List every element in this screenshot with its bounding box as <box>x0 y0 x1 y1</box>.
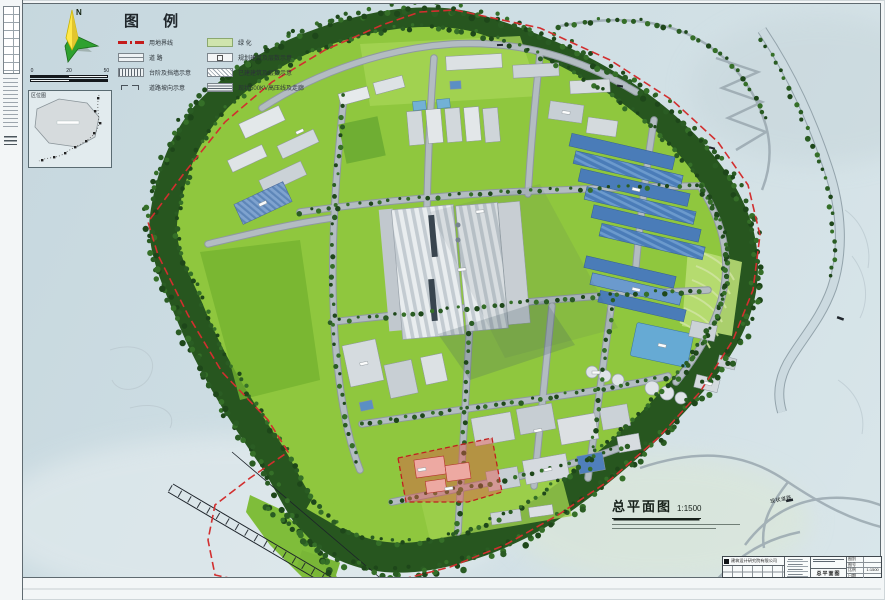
legend-item-built: 已建建筑及层数示意 <box>207 67 304 77</box>
scale-tick: 50 <box>104 68 110 74</box>
titleblock-fields: 图别 图号 比例1:1500 日期 <box>847 557 881 577</box>
legend-item-green: 绿 化 <box>207 37 304 47</box>
inset-site-label-chip <box>57 121 79 124</box>
plan-scale-text: 1:1500 <box>677 504 701 513</box>
powerline-swatch <box>207 83 233 92</box>
signature-grid <box>723 566 784 577</box>
scale-tick: 20 <box>66 68 72 74</box>
built-building-swatch <box>207 68 233 77</box>
legend-item-boundary: 用地界线 <box>118 37 191 47</box>
revision-table <box>3 6 20 74</box>
boundary-swatch <box>118 41 144 44</box>
margin-stamp <box>4 136 17 145</box>
inset-location-map: 区位图 <box>28 90 112 168</box>
road-swatch <box>118 53 144 62</box>
legend-item-slope: 道路坡向示意 <box>118 82 191 92</box>
slope-swatch <box>118 83 144 92</box>
north-label: N <box>76 8 82 17</box>
margin-text-block <box>3 78 18 130</box>
drawing-name-cell: 总平面图 <box>811 569 846 577</box>
green-swatch <box>207 38 233 47</box>
plan-title: 总平面图1:1500 <box>612 496 740 532</box>
north-arrow: N <box>34 6 110 68</box>
plan-title-text: 总平面图 <box>612 499 672 514</box>
legend-item-steps: 台阶及挡墙示意 <box>118 67 191 77</box>
inset-title: 区位图 <box>31 92 46 99</box>
legend-title: 图 例 <box>124 10 354 31</box>
company-logo <box>724 559 729 564</box>
company-name: 建筑设计研究院有限公司 <box>731 558 777 564</box>
steps-swatch <box>118 68 144 77</box>
scale-tick: 0 <box>31 68 34 74</box>
planned-building-swatch <box>207 53 233 62</box>
scale-bar: 0 20 50 <box>30 68 108 82</box>
legend-item-planned: 规划建筑及层数示意 <box>207 52 304 62</box>
legend: 图 例 用地界线 道 路 台阶及挡墙示意 道路坡向示意 绿 化 <box>118 6 354 92</box>
legend-item-road: 道 路 <box>118 52 191 62</box>
left-margin-strip <box>0 0 23 600</box>
plan-notes <box>612 524 740 530</box>
legend-item-powerline: 现状500KV高压线及走廊 <box>207 82 304 92</box>
title-block: 建筑设计研究院有限公司 总平面图 图别 图号 比例1:1500 日期 <box>722 556 882 578</box>
titleblock-roles <box>785 557 811 577</box>
drawing-sheet: N 0 20 50 图 例 用地界线 道 路 台阶及挡墙示意 道路坡向示意 <box>0 0 885 600</box>
project-name-cell <box>811 557 846 569</box>
